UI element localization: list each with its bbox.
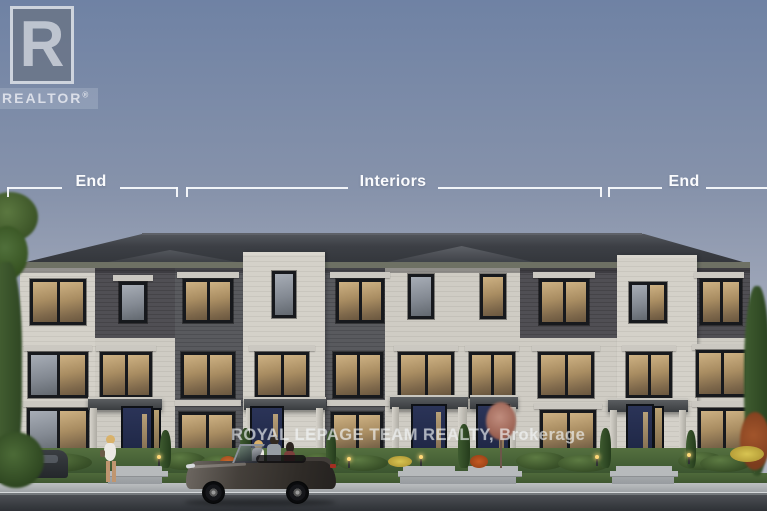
- window-pane: [428, 355, 452, 395]
- window: [119, 282, 147, 323]
- window-sill: [175, 400, 241, 406]
- flower-bush-yellow: [388, 456, 412, 467]
- realtor-logo-box: R: [10, 6, 74, 84]
- window-pane: [60, 355, 86, 395]
- window: [336, 279, 384, 323]
- window-pane: [724, 353, 746, 394]
- unit-label-right: End: [662, 173, 706, 191]
- path-light-glow: [687, 453, 691, 457]
- bracket-line: [438, 187, 602, 189]
- unit-label-center: Interiors: [348, 173, 438, 191]
- window: [100, 352, 152, 398]
- window-pane: [210, 355, 233, 395]
- window-sill: [327, 400, 389, 406]
- window-pane: [184, 355, 207, 395]
- listing-photo: R REALTOR® End Interiors End ROYAL LEPAG…: [0, 0, 767, 511]
- window-header: [249, 345, 315, 351]
- window: [700, 279, 742, 325]
- window-pane: [362, 282, 382, 320]
- window-header: [96, 345, 156, 351]
- window-pane: [651, 355, 670, 395]
- road: [0, 495, 767, 511]
- window-pane: [566, 282, 587, 322]
- flower-bush-orange: [470, 455, 488, 468]
- window-pane: [483, 277, 503, 316]
- window-pane: [339, 282, 359, 320]
- bracket-line: [186, 187, 348, 189]
- path-light-glow: [595, 455, 599, 459]
- window-header: [534, 403, 602, 409]
- window-pane: [632, 285, 647, 320]
- window: [538, 352, 594, 398]
- flower-bush-yellow: [730, 446, 764, 462]
- car-cockpit: [256, 455, 306, 463]
- window-pane: [31, 355, 57, 395]
- roof-ridge: [142, 233, 642, 235]
- window-header: [465, 345, 519, 351]
- unit-label-left: End: [62, 173, 120, 191]
- hedge: [338, 455, 388, 471]
- window-header: [622, 345, 676, 351]
- window-pane: [703, 282, 720, 322]
- window: [469, 352, 515, 398]
- window-pane: [401, 355, 425, 395]
- window-pane: [723, 282, 740, 322]
- car-wheel: [202, 481, 225, 504]
- leg: [112, 461, 116, 482]
- brokerage-watermark: ROYAL LEPAGE TEAM REALTY, Brokerage: [231, 426, 585, 445]
- window: [333, 352, 383, 398]
- window-header: [23, 401, 93, 407]
- path-light: [596, 458, 598, 466]
- window-pane: [336, 355, 357, 395]
- bracket-line: [608, 187, 662, 189]
- bracket-line: [120, 187, 178, 189]
- window-pane: [568, 355, 592, 395]
- car-taillight: [330, 464, 336, 468]
- window: [255, 352, 309, 398]
- window-pane: [541, 355, 565, 395]
- realtor-wordmark-text: REALTOR: [2, 90, 82, 106]
- window-pane: [284, 355, 307, 395]
- window-pane: [411, 277, 431, 316]
- window-pane: [128, 355, 150, 395]
- window-pane: [103, 355, 125, 395]
- window-pane: [275, 274, 293, 315]
- window: [398, 352, 454, 398]
- window-lintel: [113, 275, 153, 281]
- window-header: [394, 345, 458, 351]
- path-light-glow: [419, 455, 423, 459]
- window-pane: [650, 285, 665, 320]
- path-light: [158, 458, 160, 466]
- bracket-tick: [176, 187, 178, 197]
- registered-symbol: ®: [82, 90, 88, 99]
- window-pane: [699, 353, 721, 394]
- window-pane: [33, 282, 57, 322]
- window: [30, 279, 86, 325]
- window-pane: [60, 411, 87, 453]
- window-pane: [258, 355, 281, 395]
- window-pane: [542, 282, 563, 322]
- pedestrian-woman: [100, 435, 124, 488]
- realtor-logo-letter: R: [20, 12, 65, 77]
- path-light-glow: [157, 455, 161, 459]
- window: [28, 352, 88, 398]
- window-pane: [629, 355, 648, 395]
- window-lintel: [533, 272, 595, 278]
- window-pane: [186, 282, 207, 320]
- window: [696, 350, 748, 397]
- cypress-shrub: [600, 428, 611, 468]
- window: [626, 352, 672, 398]
- window-pane: [494, 355, 513, 395]
- cypress-shrub: [160, 430, 171, 468]
- leg: [106, 461, 110, 482]
- entry-steps: [398, 471, 522, 476]
- window-lintel: [694, 272, 744, 278]
- window-header: [532, 345, 600, 351]
- window: [408, 274, 434, 319]
- window-pane: [472, 355, 491, 395]
- window: [272, 271, 296, 318]
- path-light: [688, 456, 690, 464]
- entry-steps: [610, 471, 678, 476]
- window-pane: [360, 355, 381, 395]
- window: [183, 279, 233, 323]
- bracket-line: [7, 187, 62, 189]
- window-pane: [701, 411, 723, 453]
- path-light-glow: [347, 457, 351, 461]
- window-lintel: [177, 272, 239, 278]
- window: [181, 352, 235, 398]
- handbag: [100, 450, 105, 457]
- car-wheel: [286, 481, 309, 504]
- dress: [104, 443, 116, 461]
- window-header: [692, 401, 752, 407]
- window-pane: [122, 285, 144, 320]
- window-lintel: [330, 272, 390, 278]
- window-pane: [60, 282, 84, 322]
- window: [539, 279, 589, 325]
- bracket-line: [706, 187, 767, 189]
- window-pane: [210, 282, 231, 320]
- window: [629, 282, 667, 323]
- path-light: [348, 460, 350, 468]
- path-light: [420, 458, 422, 466]
- realtor-wordmark: REALTOR®: [0, 88, 98, 109]
- window-header: [24, 345, 92, 351]
- window: [480, 274, 506, 319]
- bracket-tick: [600, 187, 602, 197]
- sports-car: [184, 443, 338, 507]
